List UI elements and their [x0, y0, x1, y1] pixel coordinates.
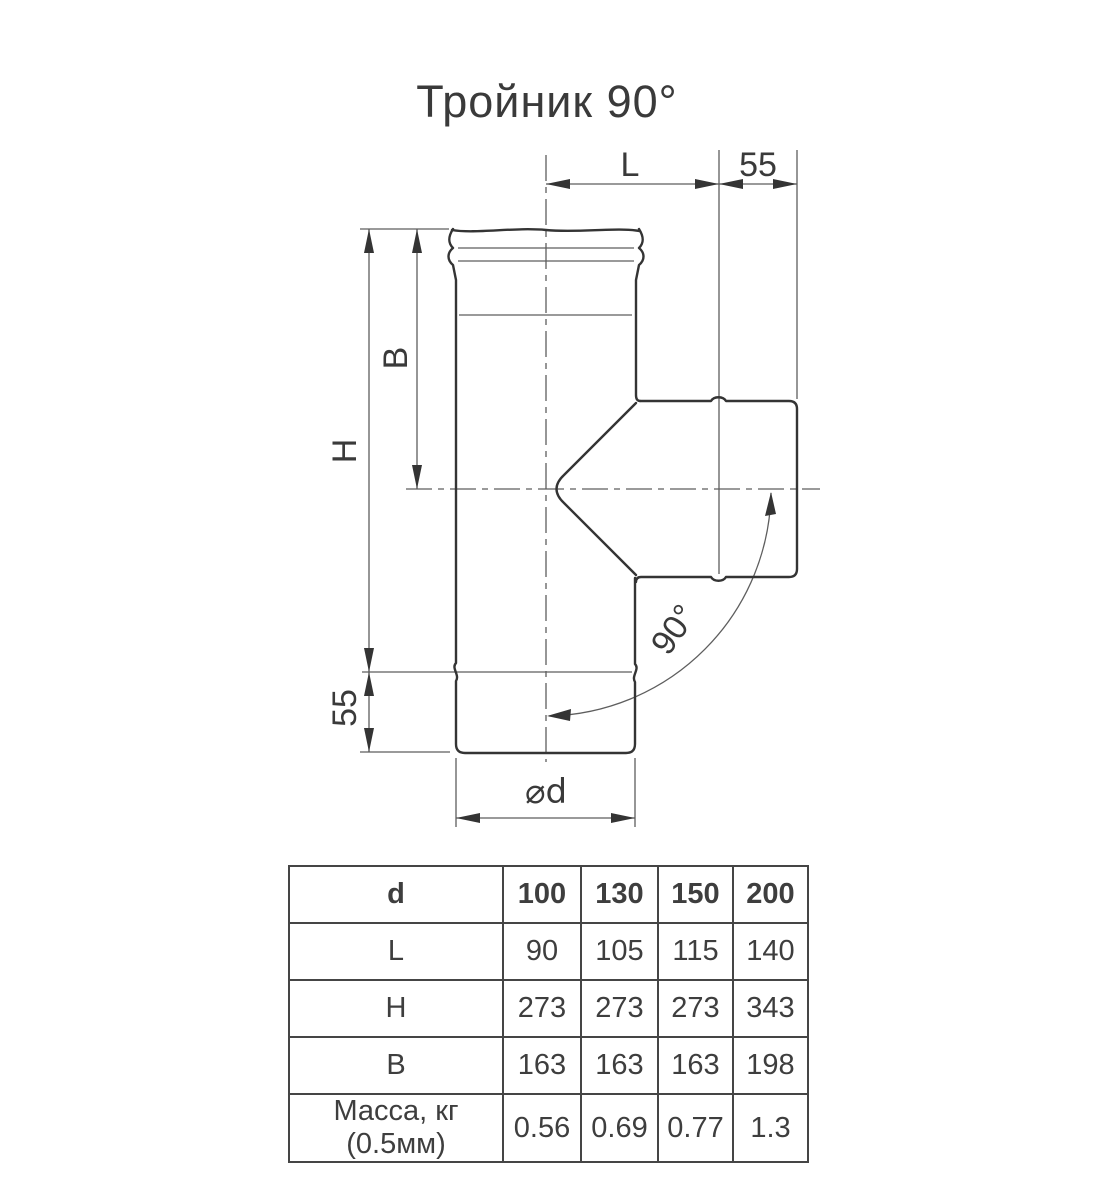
value-cell: 90 — [503, 923, 581, 980]
header-cell-200: 200 — [733, 866, 808, 923]
row-label: H — [289, 980, 503, 1037]
angle-arc — [549, 493, 771, 716]
value-cell: 0.56 — [503, 1094, 581, 1162]
spec-table: d 100 130 150 200 L 90 105 115 140 H 273… — [288, 865, 809, 1163]
dim-label-55-top: 55 — [739, 146, 777, 184]
value-cell: 115 — [658, 923, 733, 980]
header-cell-d: d — [289, 866, 503, 923]
value-cell: 1.3 — [733, 1094, 808, 1162]
row-label: B — [289, 1037, 503, 1094]
value-cell: 163 — [658, 1037, 733, 1094]
table-header-row: d 100 130 150 200 — [289, 866, 808, 923]
value-cell: 273 — [581, 980, 658, 1037]
value-cell: 105 — [581, 923, 658, 980]
dim-label-l: L — [621, 146, 640, 184]
header-cell-150: 150 — [658, 866, 733, 923]
table-row-mass: Масса, кг (0.5мм) 0.56 0.69 0.77 1.3 — [289, 1094, 808, 1162]
value-cell: 163 — [503, 1037, 581, 1094]
dim-label-diameter: ⌀d — [525, 772, 567, 812]
value-cell: 0.77 — [658, 1094, 733, 1162]
row-label: Масса, кг (0.5мм) — [289, 1094, 503, 1162]
dimension-labels: L 55 H B 55 ⌀d 90° — [326, 146, 777, 812]
dim-label-b: B — [377, 347, 415, 370]
value-cell: 273 — [503, 980, 581, 1037]
technical-drawing: L 55 H B 55 ⌀d 90° — [0, 0, 1094, 850]
value-cell: 0.69 — [581, 1094, 658, 1162]
value-cell: 273 — [658, 980, 733, 1037]
header-cell-130: 130 — [581, 866, 658, 923]
row-label: L — [289, 923, 503, 980]
table-row-h: H 273 273 273 343 — [289, 980, 808, 1037]
dim-label-55-left: 55 — [326, 689, 364, 727]
table-row-b: B 163 163 163 198 — [289, 1037, 808, 1094]
dimension-lines — [369, 184, 797, 818]
header-cell-100: 100 — [503, 866, 581, 923]
value-cell: 140 — [733, 923, 808, 980]
value-cell: 198 — [733, 1037, 808, 1094]
arrowheads — [364, 179, 797, 823]
value-cell: 343 — [733, 980, 808, 1037]
value-cell: 163 — [581, 1037, 658, 1094]
dim-label-h: H — [326, 439, 364, 464]
table-row-l: L 90 105 115 140 — [289, 923, 808, 980]
page: { "title": "Тройник 90°", "diagram": { "… — [0, 0, 1094, 1200]
angle-label: 90° — [644, 598, 705, 662]
centerlines — [406, 155, 820, 762]
